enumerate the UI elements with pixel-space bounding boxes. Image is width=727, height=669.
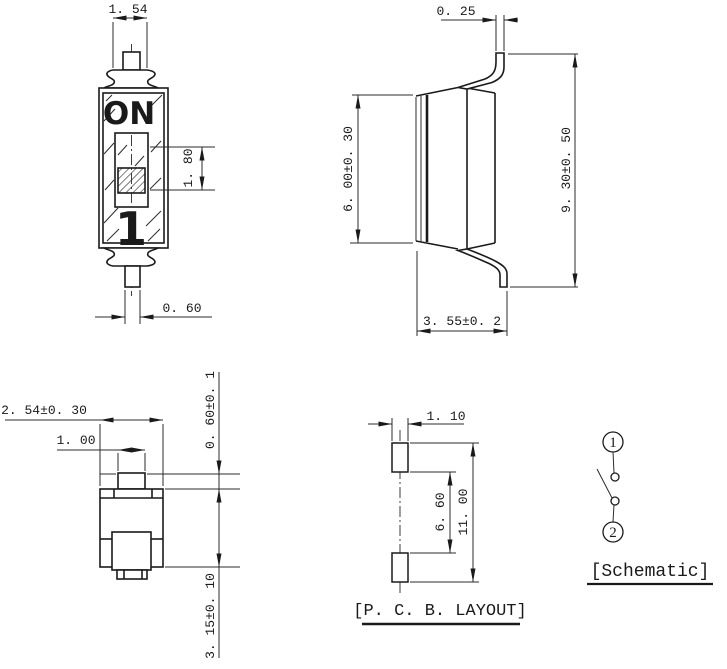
side-body <box>416 88 495 250</box>
dim-text-overall-depth: 3. 55±0. 2 <box>423 314 501 329</box>
dim-text-pad-outer-span: 11. 00 <box>456 489 471 536</box>
dim-text-lead-width: 1. 54 <box>108 2 147 17</box>
dim-text-body-depth: 3. 15±0. 10 <box>203 573 218 659</box>
front-bottom-lead <box>104 248 158 266</box>
schematic-switch-blade <box>597 469 612 498</box>
front-bottom-pin <box>125 266 140 287</box>
dim-text-pad-inner-span: 6. 60 <box>433 492 448 531</box>
schematic-title: [Schematic] <box>591 562 710 582</box>
dim-text-actuator-width: 1. 00 <box>56 433 95 448</box>
pcb-layout-view: 1. 10 6. 60 11. 00 [P. C. B. LAYOUT] <box>353 409 526 624</box>
schematic-contact-top <box>611 473 619 481</box>
end-actuator-knob <box>118 473 145 489</box>
dim-text-body-height: 6. 00±0. 30 <box>341 126 356 212</box>
pcb-pad-top <box>392 443 408 472</box>
side-bottom-lead <box>458 249 507 287</box>
pcb-pad-bottom <box>392 553 408 582</box>
schematic-pin2-number: 2 <box>609 525 617 541</box>
dip-switch-technical-drawing: ON 1 1. 54 1. 80 <box>0 0 727 664</box>
front-top-pin <box>123 52 140 70</box>
drawing-sheet: ON 1 1. 54 1. 80 <box>0 0 727 664</box>
front-top-lead <box>104 70 158 88</box>
dim-text-overall-height: 9. 30±0. 50 <box>559 127 574 213</box>
side-dim-overall-height: 9. 30±0. 50 <box>508 54 578 287</box>
pcb-dim-pad-width: 1. 10 <box>368 409 466 441</box>
side-top-lead <box>458 53 504 89</box>
schematic-wire-top <box>613 452 614 473</box>
front-dim-terminal-width: 0. 60 <box>95 290 212 324</box>
pcb-layout-title: [P. C. B. LAYOUT] <box>353 602 526 621</box>
schematic-view: 1 2 [Schematic] <box>587 432 713 584</box>
end-dim-actuator-width: 1. 00 <box>56 433 145 471</box>
end-view: 2. 54±0. 30 1. 00 0. 60±0. 1 3. 15±0. 10 <box>1 371 240 659</box>
dim-text-body-width: 2. 54±0. 30 <box>1 403 87 418</box>
dim-text-pad-width: 1. 10 <box>426 409 465 424</box>
front-view: ON 1 1. 54 1. 80 <box>95 2 215 324</box>
pcb-dim-pad-inner-span: 6. 60 <box>410 472 456 553</box>
side-dim-body-height: 6. 00±0. 30 <box>341 95 413 243</box>
dim-text-actuator-height: 1. 80 <box>181 148 196 187</box>
dim-text-terminal-width: 0. 60 <box>162 301 201 316</box>
dim-text-actuator-protrusion: 0. 60±0. 1 <box>203 371 218 449</box>
side-view: 0. 25 6. 00±0. 30 9. 30±0. 50 3. 55±0. 2 <box>341 4 578 336</box>
side-dim-lead-thickness: 0. 25 <box>436 4 518 51</box>
dim-text-lead-thickness: 0. 25 <box>436 4 475 19</box>
front-marking-on: ON <box>103 96 155 132</box>
schematic-pin1-number: 1 <box>609 435 617 451</box>
end-center-boss <box>112 532 151 570</box>
schematic-wire-bottom <box>613 505 614 522</box>
schematic-contact-bottom <box>611 497 619 505</box>
